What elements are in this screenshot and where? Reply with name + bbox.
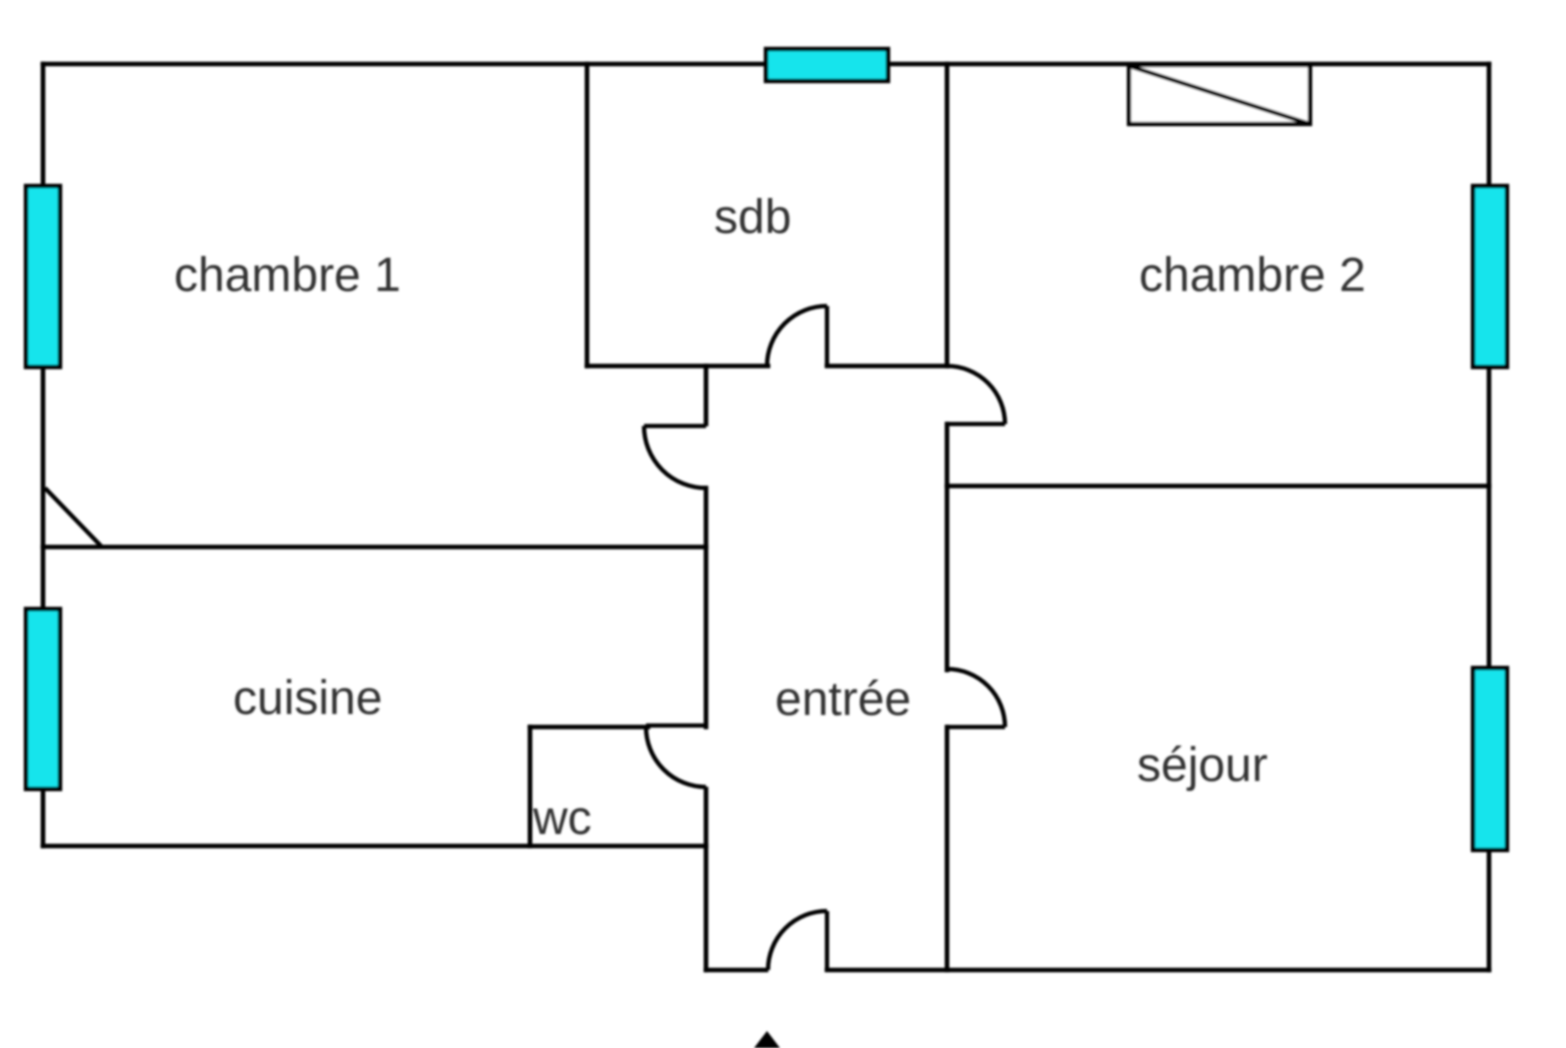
svg-text:cuisine: cuisine <box>233 672 382 725</box>
svg-text:sdb: sdb <box>714 191 791 244</box>
svg-text:chambre 2: chambre 2 <box>1139 249 1366 302</box>
svg-text:entrée: entrée <box>775 673 911 726</box>
svg-text:chambre 1: chambre 1 <box>174 249 401 302</box>
svg-text:wc: wc <box>532 792 592 845</box>
svg-text:séjour: séjour <box>1137 739 1268 792</box>
